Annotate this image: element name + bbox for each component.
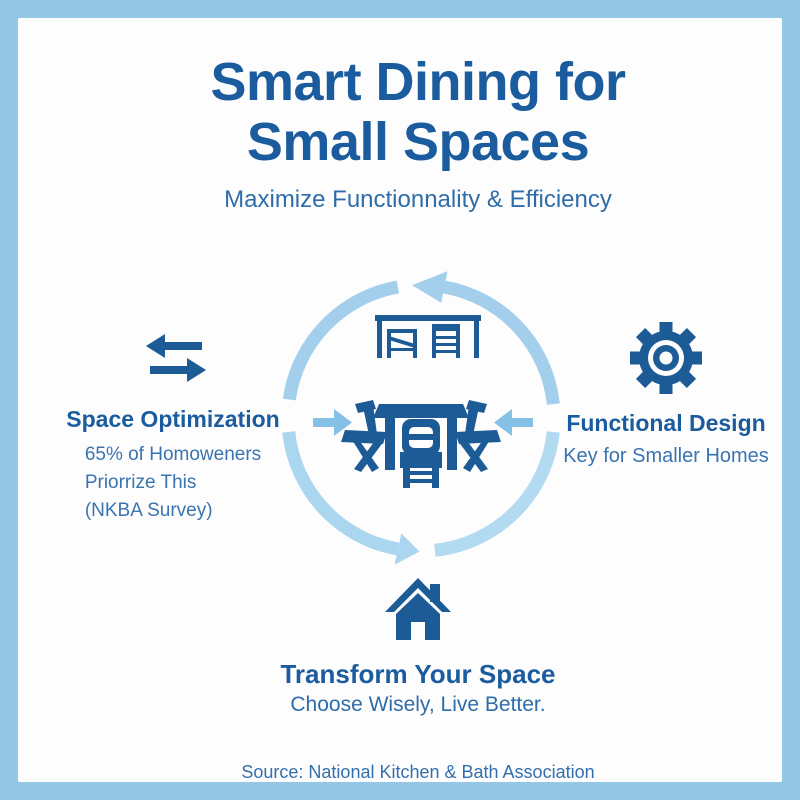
house-icon [384,576,452,647]
page-subtitle: Maximize Functionnality & Efficiency [18,186,800,214]
section-subtitle: Choose Wisely, Live Better. [290,693,545,717]
title-line-1: Smart Dining for [18,52,800,112]
page-title: Smart Dining for Small Spaces [18,52,800,172]
stat-line-3: (NKBA Survey) [85,497,261,525]
stat-line-2: Priorrize This [85,469,261,497]
section-space-optimization: Space Optimization 65% of Homoweners Pri… [48,332,298,525]
stat-line-1: 65% of Homoweners [85,441,261,469]
section-functional-design: Functional Design Key for Smaller Homes [551,318,781,468]
swap-arrows-icon [138,332,208,389]
title-line-2: Small Spaces [18,112,800,172]
section-title: Space Optimization [66,405,279,433]
folding-table-with-chairs-icon [341,400,501,488]
infographic-frame: Smart Dining for Small Spaces Maximize F… [0,0,800,800]
section-title: Functional Design [566,409,765,437]
section-title: Transform Your Space [280,659,555,689]
cycle-arrowhead-top [412,271,448,303]
infographic-canvas: Smart Dining for Small Spaces Maximize F… [18,18,782,782]
source-attribution: Source: National Kitchen & Bath Associat… [18,762,800,783]
section-body: 65% of Homoweners Priorrize This (NKBA S… [85,441,261,525]
gear-icon [625,318,707,403]
cycle-diagram [271,268,571,568]
bar-table-with-stools-icon [375,315,481,358]
inward-arrow-right [494,409,533,436]
section-transform-your-space: Transform Your Space Choose Wisely, Live… [258,576,578,717]
cycle-arrowhead-bottom [395,533,420,564]
section-subtitle: Key for Smaller Homes [563,445,769,468]
